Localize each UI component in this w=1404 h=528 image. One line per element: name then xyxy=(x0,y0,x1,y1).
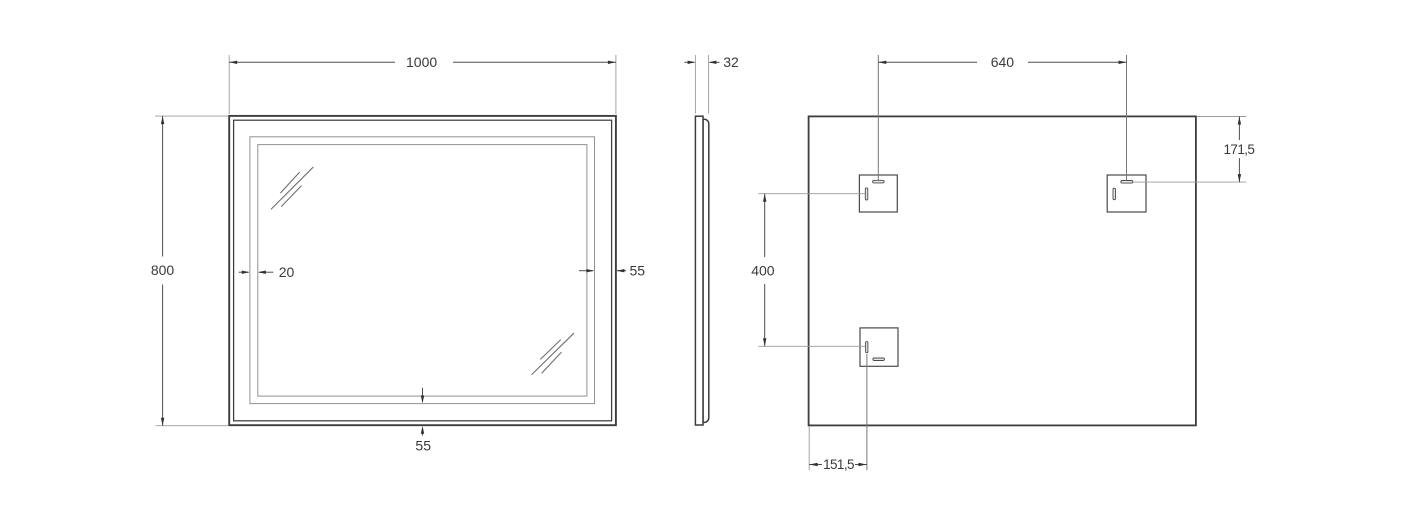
svg-text:1000: 1000 xyxy=(406,54,437,70)
svg-text:151,5: 151,5 xyxy=(823,457,854,472)
svg-text:400: 400 xyxy=(751,263,775,279)
svg-text:20: 20 xyxy=(279,264,295,280)
svg-text:640: 640 xyxy=(991,54,1015,70)
svg-text:55: 55 xyxy=(415,437,431,453)
svg-text:32: 32 xyxy=(723,54,739,70)
svg-text:55: 55 xyxy=(630,263,646,279)
svg-text:800: 800 xyxy=(151,262,175,278)
svg-text:171,5: 171,5 xyxy=(1224,142,1255,157)
